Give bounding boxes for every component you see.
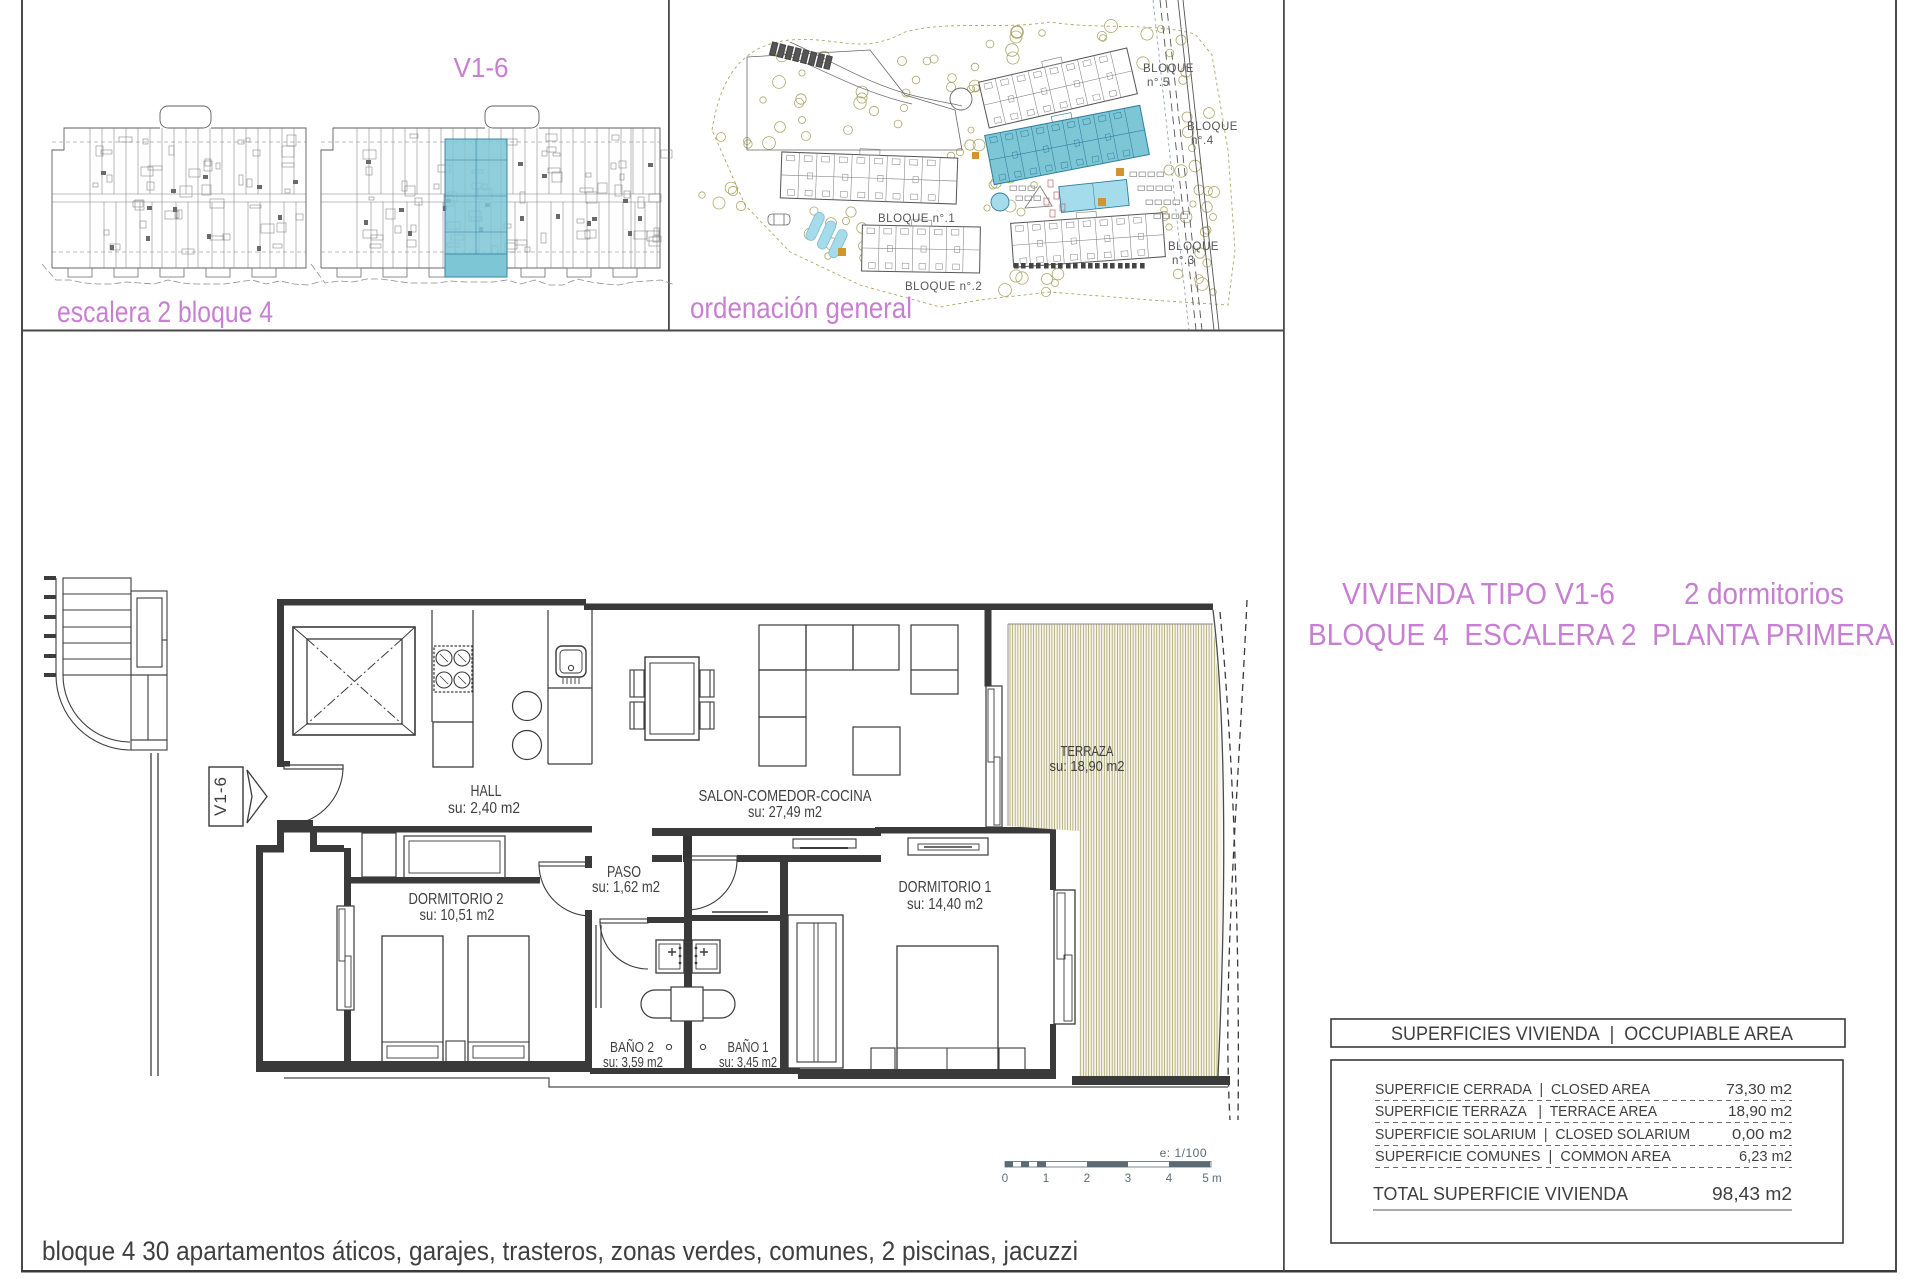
svg-text:su: 1,62 m2: su: 1,62 m2 — [592, 879, 660, 896]
svg-text:escalera 2 bloque 4: escalera 2 bloque 4 — [57, 296, 273, 329]
svg-text:BAÑO 1: BAÑO 1 — [728, 1039, 769, 1056]
svg-text:n°.4: n°.4 — [1191, 135, 1214, 147]
svg-text:su: 10,51 m2: su: 10,51 m2 — [420, 907, 495, 924]
svg-text:SUPERFICIE CERRADA | CLOSED: SUPERFICIE CERRADA | CLOSED AREA — [1375, 1082, 1650, 1098]
svg-text:1: 1 — [1043, 1173, 1049, 1185]
svg-text:n°.3: n°.3 — [1172, 255, 1195, 267]
svg-text:73,30 m2: 73,30 m2 — [1726, 1081, 1792, 1098]
svg-text:HALL: HALL — [471, 783, 502, 800]
svg-text:2 dormitorios: 2 dormitorios — [1684, 576, 1844, 611]
svg-text:6,23 m2: 6,23 m2 — [1739, 1148, 1792, 1165]
svg-text:VIVIENDA TIPO V1-6: VIVIENDA TIPO V1-6 — [1342, 576, 1615, 611]
svg-text:bloque 4 30 apartamentos ático: bloque 4 30 apartamentos áticos, garajes… — [42, 1236, 1078, 1266]
svg-text:SALON-COMEDOR-COCINA: SALON-COMEDOR-COCINA — [699, 788, 872, 805]
svg-text:SUPERFICIE COMUNES | COMMON: SUPERFICIE COMUNES | COMMON AREA — [1375, 1149, 1671, 1165]
svg-text:SUPERFICIE TERRAZA | TERRAC: SUPERFICIE TERRAZA | TERRACE AREA — [1375, 1104, 1657, 1120]
svg-text:SUPERFICIE SOLARIUM | CLOSED: SUPERFICIE SOLARIUM | CLOSED SOLARIUM — [1375, 1127, 1690, 1143]
svg-text:TOTAL SUPERFICIE VIVIENDA: TOTAL SUPERFICIE VIVIENDA — [1373, 1183, 1629, 1204]
svg-text:DORMITORIO 1: DORMITORIO 1 — [899, 879, 992, 896]
svg-text:2: 2 — [1084, 1173, 1090, 1185]
svg-text:su: 3,59 m2: su: 3,59 m2 — [603, 1055, 663, 1071]
svg-text:3: 3 — [1125, 1173, 1131, 1185]
svg-text:BLOQUE: BLOQUE — [1187, 121, 1238, 133]
svg-text:BLOQUE 4 ESCALERA 2 PLANTA P: BLOQUE 4 ESCALERA 2 PLANTA PRIMERA — [1308, 617, 1894, 652]
svg-text:4: 4 — [1166, 1173, 1173, 1185]
svg-text:V1-6: V1-6 — [454, 52, 509, 83]
svg-text:BLOQUE n°.2: BLOQUE n°.2 — [905, 281, 982, 293]
svg-text:BLOQUE n°.1: BLOQUE n°.1 — [878, 213, 955, 225]
svg-text:0,00 m2: 0,00 m2 — [1732, 1126, 1792, 1143]
svg-text:su: 14,40 m2: su: 14,40 m2 — [907, 896, 983, 913]
svg-text:0: 0 — [1002, 1173, 1008, 1185]
svg-text:18,90 m2: 18,90 m2 — [1728, 1103, 1792, 1120]
svg-text:n°.5: n°.5 — [1147, 77, 1170, 89]
svg-text:BLOQUE: BLOQUE — [1168, 241, 1219, 253]
svg-text:5 m: 5 m — [1202, 1173, 1221, 1185]
svg-text:su: 2,40 m2: su: 2,40 m2 — [448, 800, 520, 817]
svg-text:BAÑO 2: BAÑO 2 — [610, 1039, 654, 1056]
svg-text:su: 18,90 m2: su: 18,90 m2 — [1050, 758, 1125, 775]
svg-text:su: 27,49 m2: su: 27,49 m2 — [748, 804, 822, 821]
svg-text:su: 3,45 m2: su: 3,45 m2 — [719, 1055, 777, 1071]
svg-text:V1-6: V1-6 — [211, 776, 230, 816]
svg-text:SUPERFICIES VIVIENDA | OCCUP: SUPERFICIES VIVIENDA | OCCUPIABLE AREA — [1391, 1024, 1793, 1045]
svg-text:BLOQUE: BLOQUE — [1143, 63, 1194, 75]
svg-text:ordenación general: ordenación general — [690, 292, 912, 325]
svg-text:98,43 m2: 98,43 m2 — [1712, 1183, 1792, 1204]
svg-text:e: 1/100: e: 1/100 — [1160, 1146, 1207, 1160]
svg-text:DORMITORIO 2: DORMITORIO 2 — [409, 891, 504, 908]
